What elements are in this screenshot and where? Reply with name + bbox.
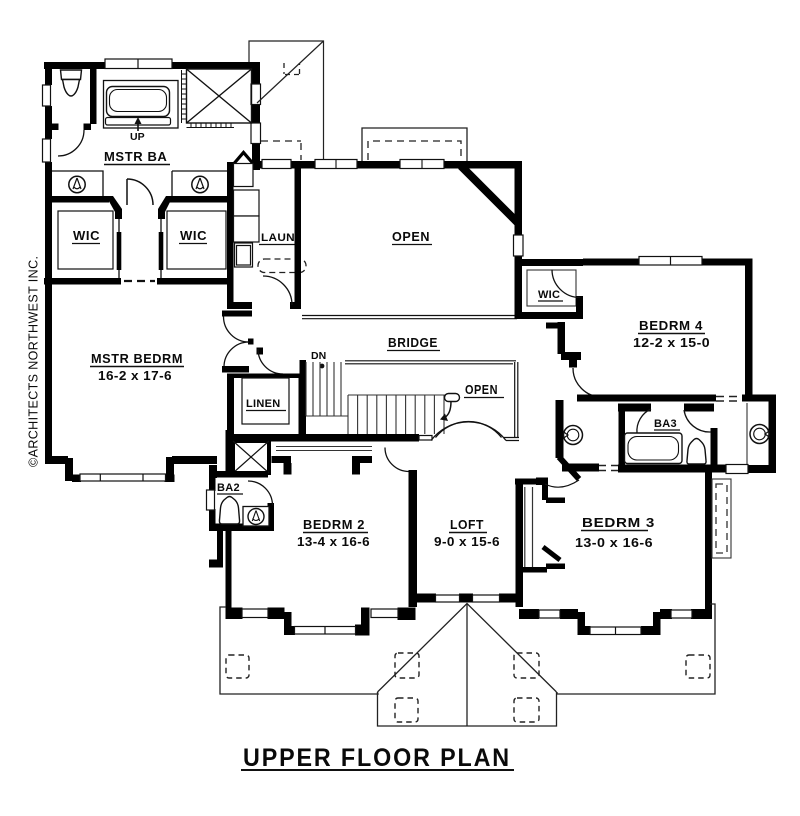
svg-text:DN: DN [311, 350, 326, 362]
svg-text:BA3: BA3 [654, 418, 677, 430]
svg-text:MSTR BEDRM: MSTR BEDRM [91, 351, 183, 366]
svg-text:OPEN: OPEN [465, 382, 498, 397]
svg-text:©ARCHITECTS NORTHWEST INC.: ©ARCHITECTS NORTHWEST INC. [27, 255, 41, 467]
svg-text:BEDRM 3: BEDRM 3 [582, 515, 655, 530]
svg-text:WIC: WIC [180, 228, 207, 243]
svg-text:13-0 x 16-6: 13-0 x 16-6 [575, 535, 653, 550]
svg-text:BA2: BA2 [217, 482, 240, 494]
svg-text:BEDRM 4: BEDRM 4 [639, 318, 703, 333]
svg-text:WIC: WIC [73, 228, 100, 243]
svg-text:LOFT: LOFT [450, 517, 484, 532]
svg-text:WIC: WIC [538, 289, 560, 301]
svg-text:UP: UP [130, 131, 145, 143]
svg-text:LAUN: LAUN [261, 232, 295, 244]
svg-text:13-4 x 16-6: 13-4 x 16-6 [297, 534, 370, 549]
svg-text:UPPER FLOOR PLAN: UPPER FLOOR PLAN [243, 744, 511, 772]
svg-text:MSTR BA: MSTR BA [104, 149, 167, 164]
svg-text:BRIDGE: BRIDGE [388, 335, 438, 350]
svg-text:16-2 x 17-6: 16-2 x 17-6 [98, 368, 172, 383]
svg-text:BEDRM 2: BEDRM 2 [303, 517, 365, 532]
svg-text:LINEN: LINEN [246, 398, 281, 410]
svg-text:12-2 x 15-0: 12-2 x 15-0 [633, 335, 710, 350]
svg-text:OPEN: OPEN [392, 229, 430, 244]
svg-text:9-0 x 15-6: 9-0 x 15-6 [434, 534, 500, 549]
